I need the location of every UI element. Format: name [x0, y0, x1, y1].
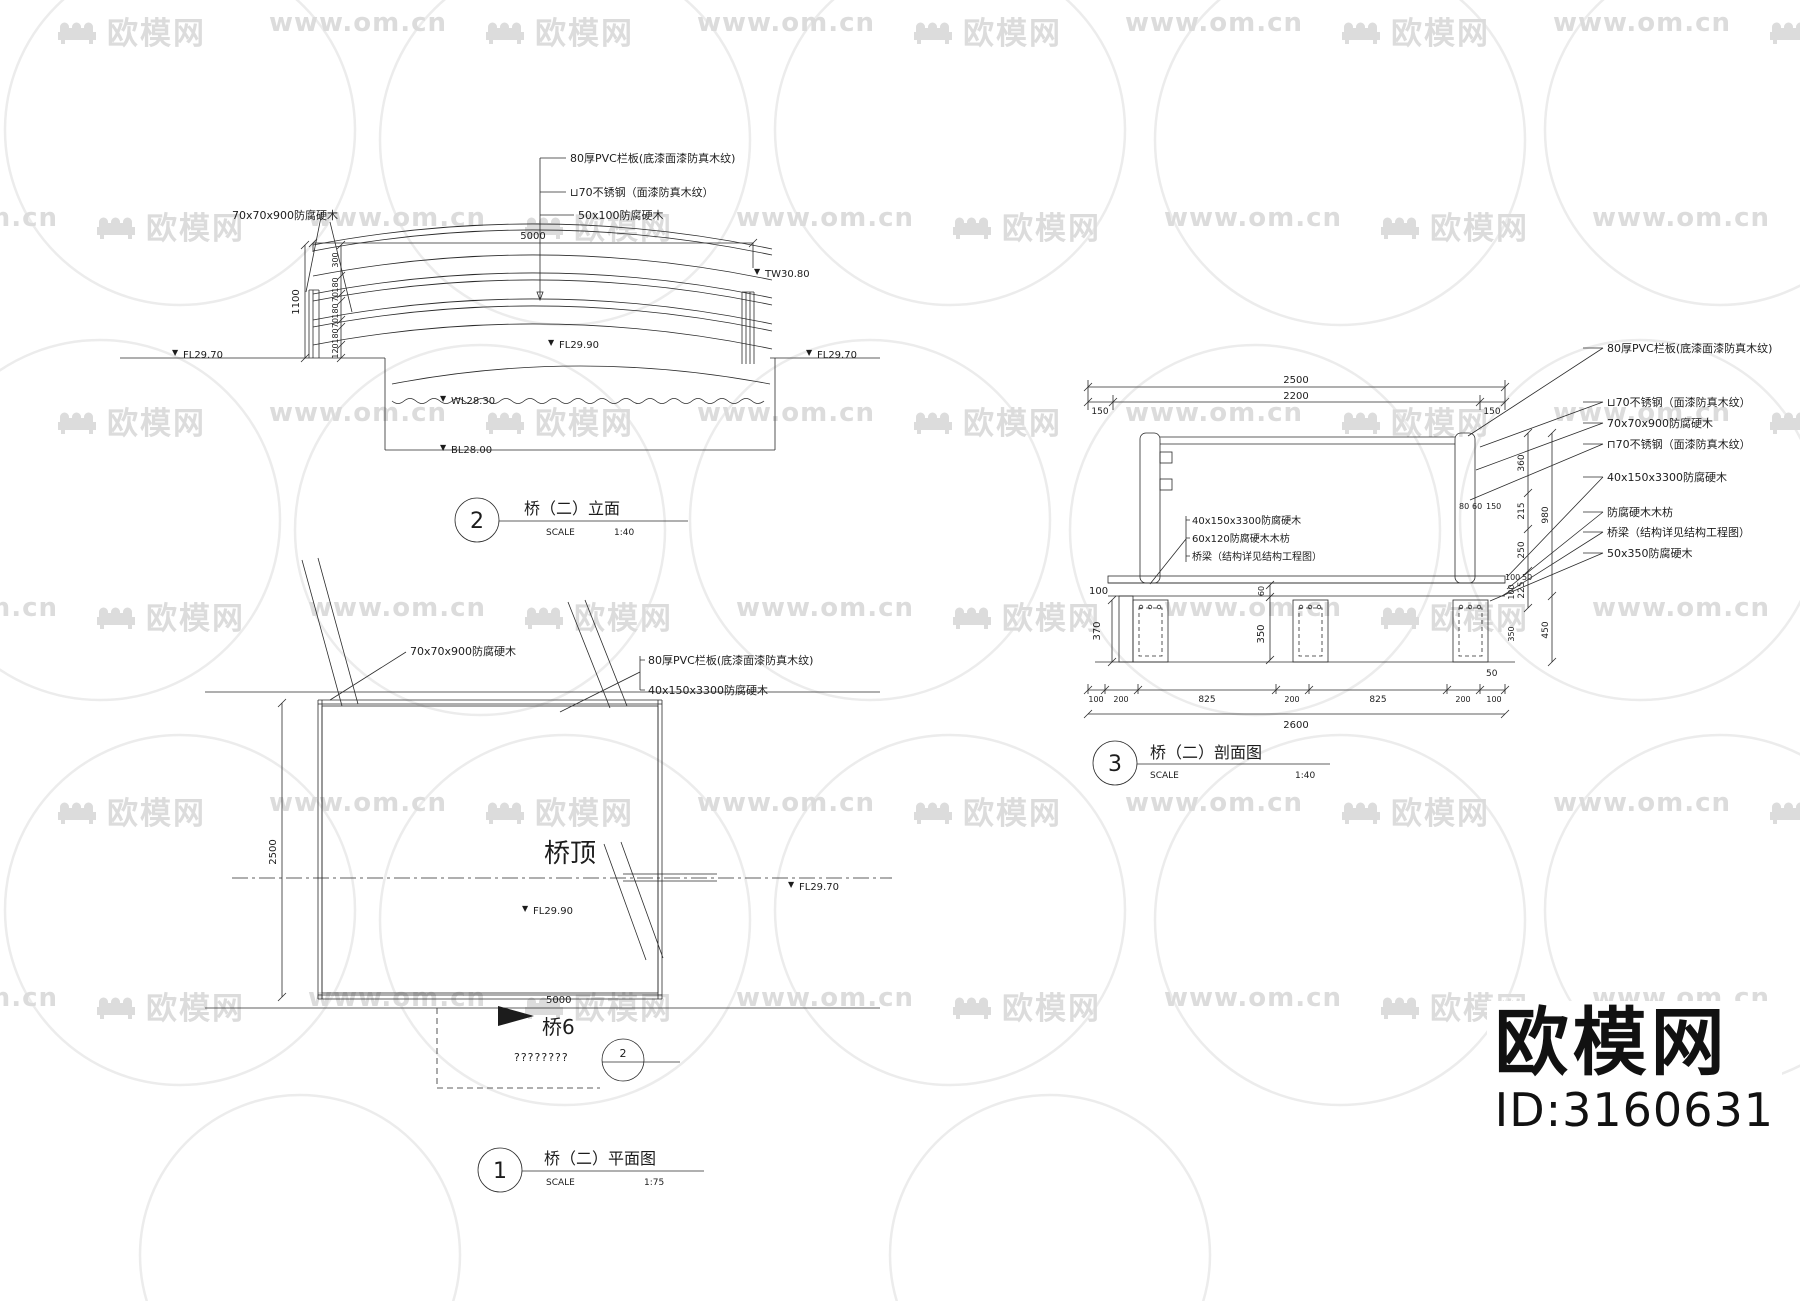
logo-id: ID:3160631 — [1495, 1083, 1774, 1137]
plan-deck-text: 桥顶 — [544, 839, 596, 869]
section-dim-left-line — [1108, 596, 1116, 666]
level-tw: TW30.80 — [764, 269, 810, 280]
plan-section-cut — [623, 874, 717, 881]
plan-label-leaders — [330, 652, 645, 712]
plan-label-pvc: 80厚PVC栏板(底漆面漆防真木纹) — [648, 653, 813, 667]
section-right-label: ⊓70不锈钢（面漆防真木纹） — [1607, 437, 1751, 451]
scale-label: SCALE — [546, 1178, 575, 1188]
ground-and-pool — [120, 358, 880, 450]
section-dim-mid-line — [1266, 581, 1274, 664]
level-triangle: ▼ — [806, 348, 813, 357]
section-dim-bottom-seg: 825 — [1369, 695, 1386, 705]
section-right-label: 桥梁（结构详见结构工程图） — [1607, 525, 1750, 539]
section-dim-post-base: 60 — [1472, 502, 1482, 511]
section-right-label: 50x350防腐硬木 — [1607, 546, 1693, 560]
level-wl: WL28.30 — [451, 396, 495, 407]
section-mid-label: 桥梁（结构详见结构工程图） — [1192, 550, 1322, 563]
section-dim-mid-pile: 350 — [1256, 624, 1267, 643]
section-right-label: ⊔70不锈钢（面漆防真木纹） — [1607, 395, 1751, 409]
section-dim-top-seg: 150 — [1091, 407, 1108, 417]
plan-dim-length-value: 5000 — [546, 995, 571, 1006]
elevation-seg: 120 — [331, 343, 340, 358]
plan-scale: 1:75 — [644, 1178, 664, 1188]
section-deck — [1108, 576, 1505, 662]
elevation-dim-width-value: 5000 — [520, 231, 545, 242]
plan-banks — [205, 692, 880, 1008]
elevation-label-post: 70x70x900防腐硬木 — [232, 208, 338, 222]
elevation-seg: 180 — [331, 328, 340, 343]
section-mid-label: 40x150x3300防腐硬木 — [1192, 514, 1301, 527]
plan-label-plank: 40x150x3300防腐硬木 — [648, 683, 768, 697]
section-dim-bottom-seg: 200 — [1113, 695, 1128, 704]
plan-level-fl-side: FL29.70 — [799, 882, 839, 893]
site-logo: 欧模网 ID:3160631 — [1487, 1001, 1782, 1141]
section-right-label: 80厚PVC栏板(底漆面漆防真木纹) — [1607, 341, 1772, 355]
section-dim-mid-deck: 60 — [1257, 586, 1266, 596]
section-dim-bottom-seg: 100 — [1088, 695, 1103, 704]
bridge-arcs — [313, 224, 772, 384]
elevation-scale: 1:40 — [614, 528, 634, 538]
section-dim-post-base: 80 — [1459, 502, 1469, 511]
section-dim-right-seg: 225 — [1517, 581, 1527, 598]
level-bl: BL28.00 — [451, 445, 492, 456]
elevation-seg: 180 — [331, 277, 340, 292]
level-fl-right: FL29.70 — [817, 350, 857, 361]
section-title-number: 3 — [1108, 752, 1122, 777]
section-dim-right-seg: 360 — [1517, 454, 1527, 471]
elevation-label-steel: ⊔70不锈钢（面漆防真木纹） — [570, 185, 714, 199]
section-dim-bottom-total: 2600 — [1283, 720, 1308, 731]
section-dim-bottom-seg: 100 — [1486, 695, 1501, 704]
logo-brand: 欧模网 — [1495, 1005, 1774, 1083]
section-dim-corner: 50 — [1486, 669, 1498, 679]
section-dim-left-pile: 370 — [1092, 621, 1103, 640]
elevation-seg: 70 — [331, 318, 340, 328]
section-dim-top-seg: 150 — [1483, 407, 1500, 417]
plan-label-post: 70x70x900防腐硬木 — [410, 644, 516, 658]
section-dim-top-seg: 2200 — [1283, 391, 1308, 402]
section-right-label: 40x150x3300防腐硬木 — [1607, 470, 1727, 484]
section-dim-top-total: 2500 — [1283, 375, 1308, 386]
section-dim-right — [1524, 429, 1556, 666]
cad-sheet: 欧模网www.om.cn欧模网www.om.cn欧模网www.om.cn欧模网w… — [0, 0, 1800, 1301]
plan-title-number: 1 — [493, 1159, 507, 1184]
section-right-leaders — [1468, 348, 1603, 601]
level-triangle: ▼ — [172, 348, 179, 357]
section-dim-bottom-seg: 200 — [1284, 695, 1299, 704]
elevation-title-number: 2 — [470, 509, 484, 534]
section-dim-post-base: 150 — [1486, 502, 1501, 511]
elevation-view: 80厚PVC栏板(底漆面漆防真木纹) ⊔70不锈钢（面漆防真木纹） 50x100… — [120, 151, 880, 542]
elevation-seg: 70 — [331, 292, 340, 302]
section-dim-right-seg: 215 — [1517, 502, 1527, 519]
plan-title: 桥（二）平面图 — [544, 1149, 656, 1168]
section-dim-bottom-seg: 200 — [1455, 695, 1470, 704]
elevation-dim-height-value: 1100 — [291, 289, 302, 314]
elevation-dim-width — [309, 239, 757, 268]
section-piles — [1095, 600, 1515, 662]
plan-view: 70x70x900防腐硬木 80厚PVC栏板(底漆面漆防真木纹) 40x150x… — [205, 558, 892, 1192]
section-dim-left-deck: 100 — [1089, 586, 1108, 597]
plan-dim-width — [278, 699, 286, 1001]
section-right-label: 70x70x900防腐硬木 — [1607, 416, 1713, 430]
level-triangle: ▼ — [548, 338, 555, 347]
level-triangle: ▼ — [440, 394, 447, 403]
bridge-end-posts — [309, 290, 754, 364]
plan-bridge-number: 桥6 — [542, 1015, 575, 1039]
plan-unknown-text: ???????? — [514, 1051, 569, 1064]
elevation-label-wood: 50x100防腐硬木 — [578, 208, 664, 222]
scale-label: SCALE — [546, 528, 575, 538]
elevation-label-pvc: 80厚PVC栏板(底漆面漆防真木纹) — [570, 151, 735, 165]
level-fl-left: FL29.70 — [183, 350, 223, 361]
elevation-seg: 300 — [331, 252, 340, 267]
section-mid-leaders — [1150, 516, 1190, 584]
section-title: 桥（二）剖面图 — [1150, 743, 1262, 762]
section-dim-right-outer: 450 — [1541, 621, 1551, 638]
plan-ref-number: 2 — [620, 1047, 627, 1060]
section-mid-label: 60x120防腐硬木木枋 — [1192, 532, 1290, 545]
scale-label: SCALE — [1150, 771, 1179, 781]
section-dim-bottom-seg: 825 — [1198, 695, 1215, 705]
plan-level-fl-mid: FL29.90 — [533, 906, 573, 917]
level-triangle: ▼ — [788, 880, 795, 889]
level-triangle: ▼ — [440, 443, 447, 452]
section-dim-right-pile: 350 — [1507, 626, 1516, 641]
level-triangle: ▼ — [754, 267, 761, 276]
level-triangle: ▼ — [522, 904, 529, 913]
elevation-seg: 180 — [331, 303, 340, 318]
section-dim-right-outer: 980 — [1541, 506, 1551, 523]
plan-rails — [318, 700, 662, 999]
elevation-title: 桥（二）立面 — [524, 499, 620, 518]
plan-break-lines — [302, 558, 663, 960]
level-fl-mid: FL29.90 — [559, 340, 599, 351]
section-scale: 1:40 — [1295, 771, 1315, 781]
section-dim-right-seg: 250 — [1517, 541, 1527, 558]
section-right-label: 防腐硬木木枋 — [1607, 505, 1673, 519]
section-view: 2500 150 2200 150 — [1084, 341, 1772, 785]
plan-dim-width-value: 2500 — [268, 839, 279, 864]
